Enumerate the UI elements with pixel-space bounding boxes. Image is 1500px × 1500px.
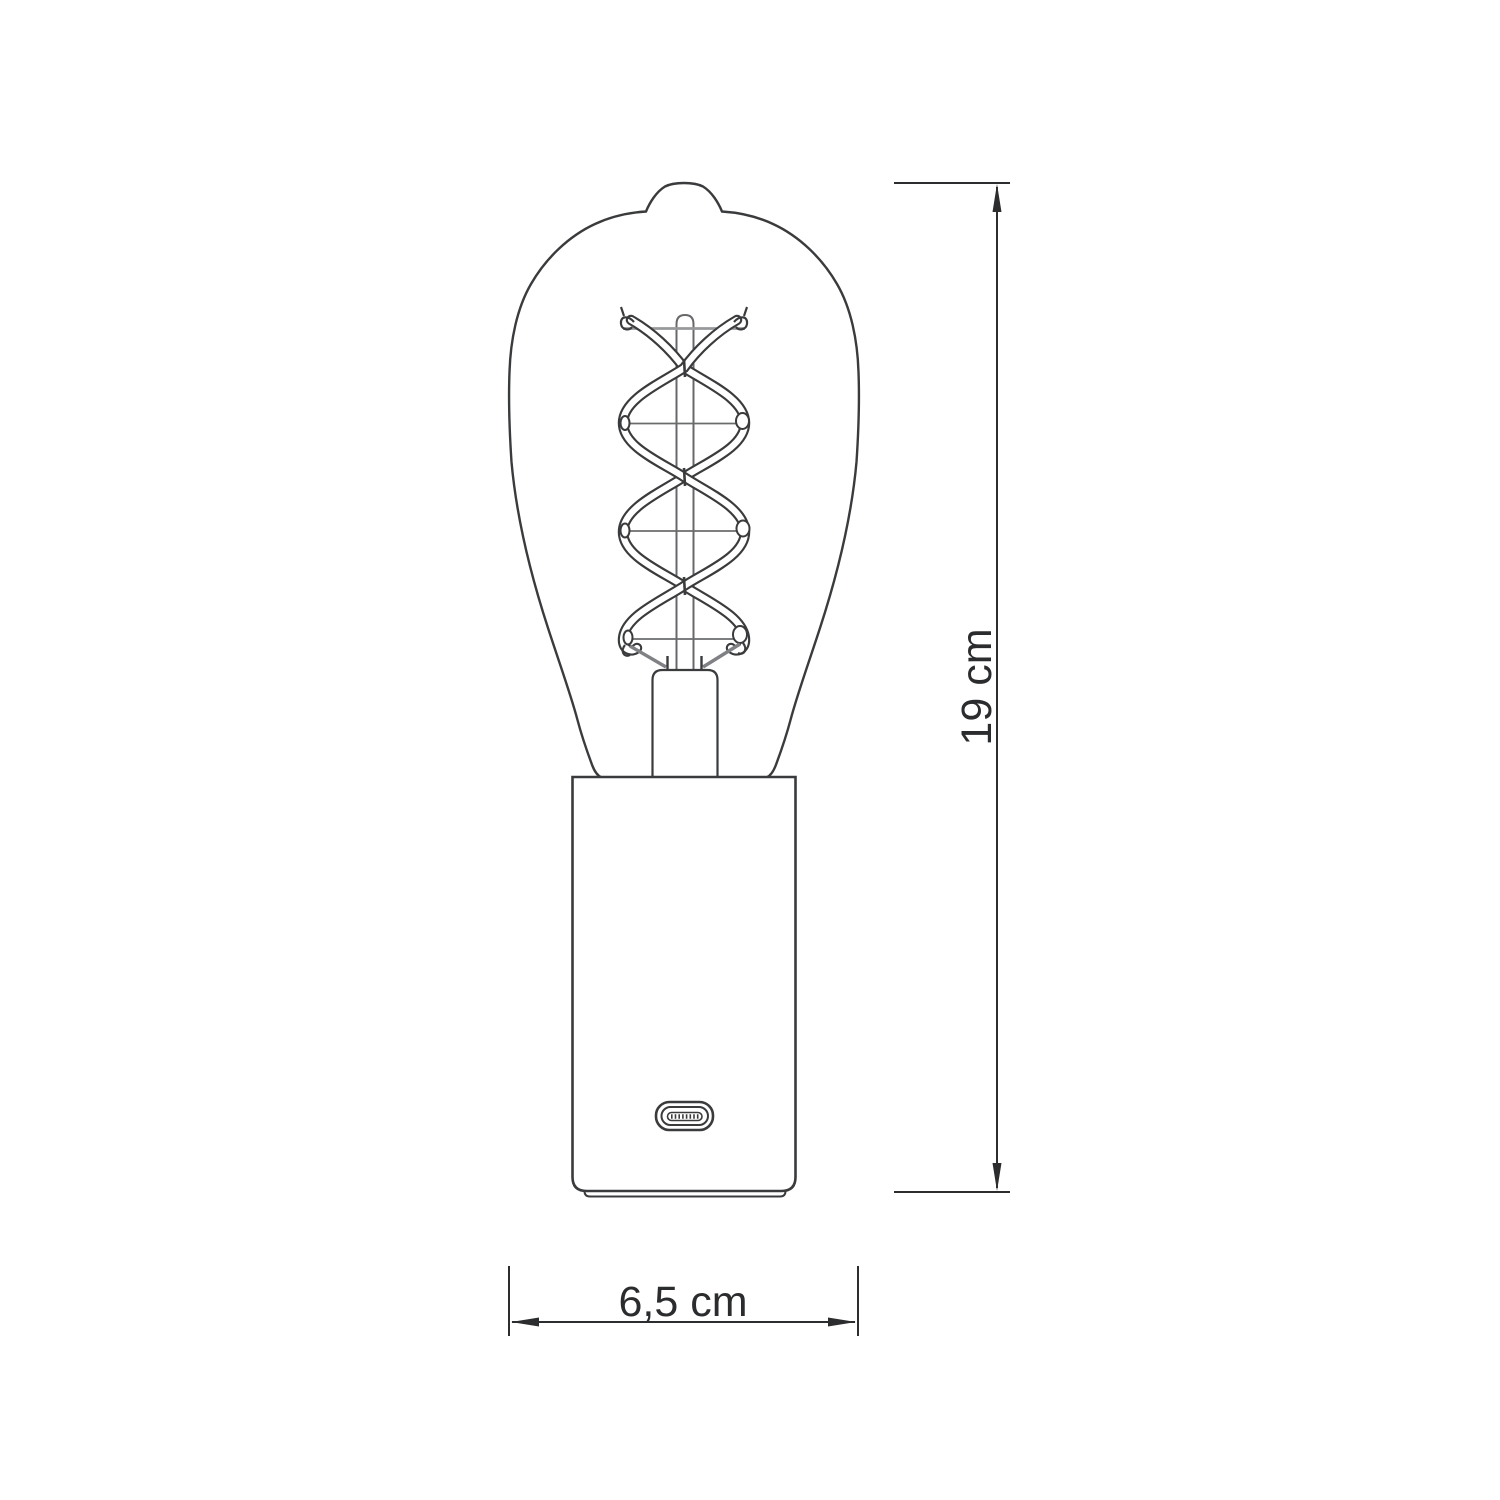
stem-pinch	[653, 670, 718, 778]
width-arrow-right	[828, 1318, 856, 1327]
dimension-diagram: 19 cm 6,5 cm	[0, 0, 1500, 1500]
height-arrow-down	[993, 1163, 1002, 1191]
width-dimension: 6,5 cm	[509, 1266, 858, 1336]
width-dimension-label: 6,5 cm	[618, 1278, 747, 1326]
filament-assembly	[621, 307, 750, 778]
height-dimension-label: 19 cm	[953, 628, 1001, 745]
lamp-technical-drawing: 19 cm 6,5 cm	[0, 0, 1500, 1500]
width-arrow-left	[511, 1318, 539, 1327]
lamp-drawing	[509, 183, 859, 1197]
height-arrow-up	[993, 184, 1002, 212]
height-dimension: 19 cm	[894, 183, 1010, 1192]
usb-c-port-icon	[656, 1102, 713, 1130]
